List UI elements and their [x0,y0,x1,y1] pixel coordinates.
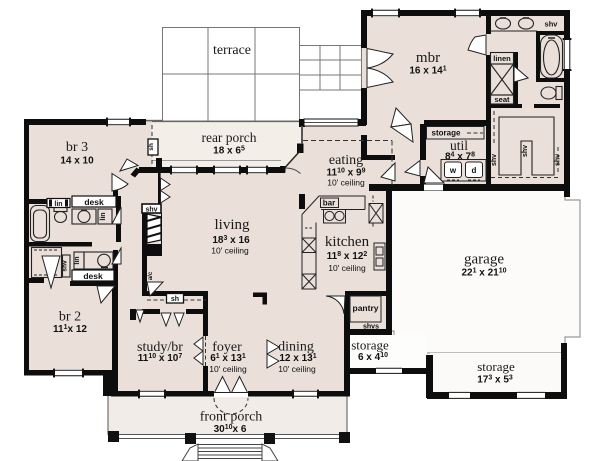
svg-text:br 3: br 3 [66,140,88,155]
svg-text:111x 12: 111x 12 [53,324,87,335]
svg-text:lin: lin [74,256,81,264]
svg-text:shv: shv [545,20,559,29]
svg-text:shv: shv [145,207,157,214]
svg-text:w: w [449,166,457,175]
svg-text:lin: lin [54,201,62,208]
svg-text:storage: storage [432,129,461,138]
svg-text:shv: shv [62,260,69,272]
svg-text:18 x 65: 18 x 65 [213,146,245,157]
svg-text:storage: storage [477,359,515,374]
svg-text:16 x 141: 16 x 141 [409,66,446,77]
svg-text:shv: shv [491,154,498,166]
svg-text:linen: linen [493,54,511,63]
svg-text:storage: storage [351,338,389,353]
svg-text:84 x 78: 84 x 78 [445,152,475,163]
svg-text:lin: lin [100,212,107,220]
svg-text:10' ceiling: 10' ceiling [278,364,316,374]
svg-text:living: living [214,217,250,233]
svg-text:10' ceiling: 10' ceiling [328,263,366,273]
svg-text:10' ceiling: 10' ceiling [211,246,249,256]
svg-text:pantry: pantry [353,303,379,313]
svg-text:desk: desk [84,197,104,207]
svg-text:terrace: terrace [213,43,251,58]
svg-text:10' ceiling: 10' ceiling [327,178,365,188]
svg-text:front porch: front porch [200,410,263,425]
svg-text:kitchen: kitchen [325,234,370,250]
svg-text:a/c: a/c [148,271,154,280]
svg-text:14 x 10: 14 x 10 [60,156,94,167]
svg-text:12 x 131: 12 x 131 [279,353,316,364]
svg-text:10' ceiling: 10' ceiling [209,364,247,374]
svg-text:d: d [472,166,477,175]
svg-text:mbr: mbr [416,50,440,66]
svg-text:bar: bar [323,199,335,208]
svg-text:shv: shv [522,145,529,157]
svg-text:rear porch: rear porch [201,130,256,145]
svg-text:sh: sh [171,296,179,303]
svg-text:desk: desk [83,271,103,281]
svg-text:1110 x 107: 1110 x 107 [138,353,183,364]
svg-text:61 x 131: 61 x 131 [210,353,246,364]
svg-text:sh: sh [148,143,155,151]
svg-text:br 2: br 2 [59,310,81,325]
svg-text:118 x 122: 118 x 122 [327,251,368,262]
svg-text:eating: eating [329,153,363,168]
svg-text:garage: garage [464,252,504,268]
svg-text:183 x 16: 183 x 16 [212,235,250,246]
svg-text:shv: shv [555,154,562,166]
svg-text:shvs: shvs [363,324,379,331]
svg-text:173 x 53: 173 x 53 [477,375,513,386]
svg-text:seat: seat [494,95,510,104]
